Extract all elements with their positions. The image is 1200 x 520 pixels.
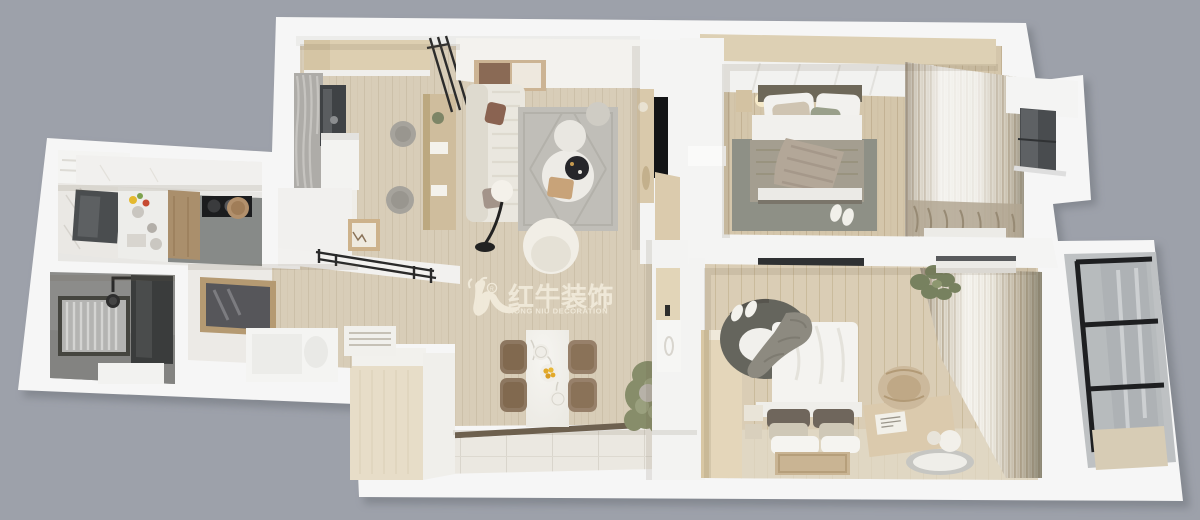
svg-text:HONG NIU DECORATION: HONG NIU DECORATION	[508, 307, 608, 316]
svg-text:R: R	[490, 287, 495, 293]
